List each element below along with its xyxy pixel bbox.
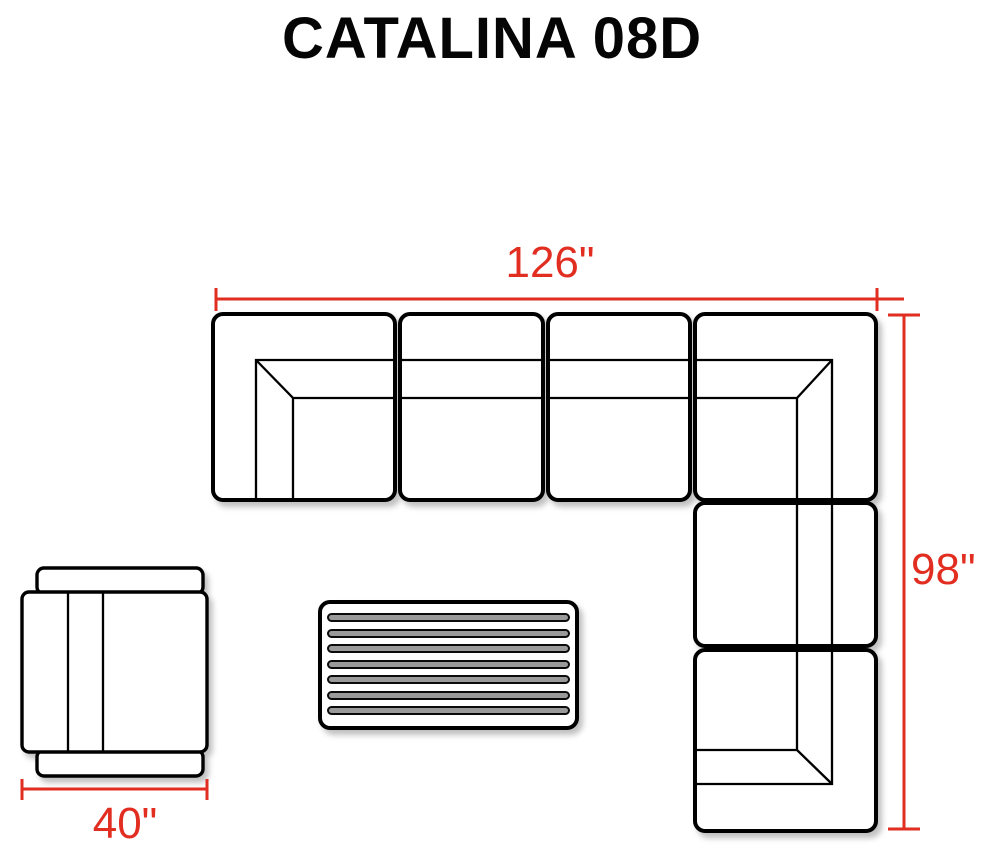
sofa-piece-armless-3: [695, 503, 876, 646]
table-slat: [328, 661, 569, 668]
table-slat: [328, 707, 569, 714]
table-slat: [328, 645, 569, 652]
sectional-sofa: [213, 314, 876, 831]
sofa-piece-armless-1: [400, 314, 543, 500]
club-chair-top-arm: [37, 568, 203, 594]
coffee-table-slats: [328, 614, 569, 714]
sectional-width-dimension-label: 126": [505, 241, 594, 285]
sofa-piece-bottom-arm-end: [695, 650, 876, 831]
product-diagram: CATALINA 08D: [0, 0, 990, 864]
sofa-piece-armless-3-outline: [695, 503, 876, 646]
table-slat: [328, 614, 569, 621]
sofa-piece-bottom-arm-end-outline: [695, 650, 876, 831]
chair-width-dimension-label: 40": [93, 802, 158, 846]
sofa-piece-armless-2-outline: [548, 314, 690, 500]
sofa-piece-armless-2: [548, 314, 690, 500]
sectional-depth-dimension-label: 98": [911, 548, 976, 592]
sofa-piece-left-arm-end-outline: [213, 314, 395, 500]
sofa-piece-left-arm-end: [213, 314, 395, 500]
club-chair-body-outline: [22, 592, 207, 752]
sofa-piece-armless-1-outline: [400, 314, 543, 500]
table-slat: [328, 676, 569, 683]
chair-width-dimension-line: [22, 779, 207, 800]
club-chair-bottom-arm: [37, 750, 203, 776]
club-chair: [22, 568, 207, 776]
sectional-width-dimension-line: [216, 288, 904, 311]
table-slat: [328, 630, 569, 637]
sofa-piece-corner-outline: [695, 314, 876, 500]
floorplan-drawing: [0, 0, 990, 864]
coffee-table: [320, 602, 577, 728]
sofa-piece-corner: [695, 314, 876, 500]
table-slat: [328, 692, 569, 699]
